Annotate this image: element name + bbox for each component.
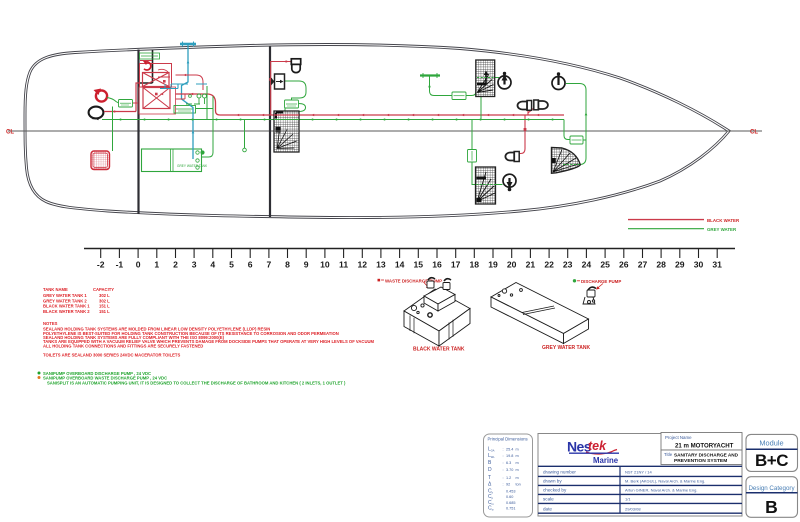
svg-text:m: m (516, 454, 519, 458)
svg-text:GREY WATER TANK 1: GREY WATER TANK 1 (43, 293, 87, 298)
svg-text:21 m MOTORYACHT: 21 m MOTORYACHT (675, 443, 734, 450)
svg-text:0.453: 0.453 (506, 490, 516, 494)
svg-text:D: D (488, 467, 492, 473)
svg-text:151 L: 151 L (99, 309, 110, 314)
svg-text:1: 1 (154, 260, 159, 270)
svg-text:20: 20 (507, 260, 517, 270)
svg-text:BLACK WATER TANK 2: BLACK WATER TANK 2 (43, 309, 90, 314)
svg-text:SANISPLIT IS AN AUTOMATIC PUMP: SANISPLIT IS AN AUTOMATIC PUMPING UNIT, … (47, 380, 346, 385)
svg-text:28: 28 (656, 260, 666, 270)
svg-text:m: m (516, 461, 519, 465)
svg-text:Design Category: Design Category (748, 485, 795, 492)
svg-text:GREY WATER TANK: GREY WATER TANK (177, 164, 208, 168)
svg-text:10: 10 (320, 260, 330, 270)
svg-text:m: m (516, 468, 519, 472)
svg-text:CAPACITY: CAPACITY (93, 287, 114, 292)
svg-text:0: 0 (136, 260, 141, 270)
svg-text:6: 6 (248, 260, 253, 270)
svg-text:NST 21NY / 14: NST 21NY / 14 (625, 469, 653, 474)
svg-text:date: date (543, 506, 552, 511)
svg-text:21: 21 (526, 260, 536, 270)
svg-text:CL: CL (750, 130, 758, 136)
svg-text:16: 16 (432, 260, 442, 270)
svg-text:TANK NAME: TANK NAME (43, 287, 68, 292)
svg-text:27: 27 (638, 260, 648, 270)
svg-text:Artun GINER, Naval Arch. & Mar: Artun GINER, Naval Arch. & Marine Eng. (625, 488, 697, 493)
svg-text:0.751: 0.751 (506, 506, 516, 510)
svg-text:Marine: Marine (593, 456, 619, 465)
svg-text:0.60: 0.60 (506, 495, 513, 499)
svg-text:3: 3 (192, 260, 197, 270)
svg-text:7: 7 (267, 260, 272, 270)
svg-text:-2: -2 (97, 260, 105, 270)
svg-text:25.4: 25.4 (506, 447, 513, 451)
svg-text:DISCHARGE PUMP: DISCHARGE PUMP (581, 279, 621, 284)
svg-text:TOILETS ARE SEALAND 3000 SERIE: TOILETS ARE SEALAND 3000 SERIES 24VDC MA… (43, 353, 180, 358)
svg-text:302 L: 302 L (99, 298, 110, 303)
svg-text:22: 22 (544, 260, 554, 270)
svg-text:12: 12 (358, 260, 368, 270)
svg-text::: : (503, 482, 504, 486)
svg-text:ton: ton (516, 482, 521, 486)
svg-text:ALL HOLDING TANK CONNECTIONS A: ALL HOLDING TANK CONNECTIONS AND FITTING… (43, 343, 203, 348)
svg-text:drawing number: drawing number (543, 469, 576, 474)
svg-text:302 L: 302 L (99, 293, 110, 298)
svg-text:GREY WATER TANK: GREY WATER TANK (542, 345, 590, 351)
svg-text:24: 24 (582, 260, 592, 270)
svg-text:-1: -1 (116, 260, 124, 270)
svg-text:tek: tek (588, 439, 607, 453)
svg-text:19: 19 (488, 260, 498, 270)
svg-text:m: m (516, 476, 519, 480)
svg-text:BLACK WATER TANK 1: BLACK WATER TANK 1 (43, 304, 90, 309)
svg-text:PREVENTION SYSTEM: PREVENTION SYSTEM (674, 458, 727, 464)
svg-text:30: 30 (694, 260, 704, 270)
svg-text:M. Berk (AKGUL), Naval Arch. &: M. Berk (AKGUL), Naval Arch. & Marine En… (625, 479, 705, 484)
svg-text:CL: CL (6, 130, 14, 136)
svg-text:13: 13 (376, 260, 386, 270)
svg-text:19.8: 19.8 (506, 454, 513, 458)
svg-text:6.3: 6.3 (506, 461, 511, 465)
svg-text:151 L: 151 L (99, 304, 110, 309)
svg-text:Title: Title (664, 452, 673, 457)
svg-text::: : (503, 468, 504, 472)
svg-text:SANITARY DISCHARGE AND: SANITARY DISCHARGE AND (674, 453, 739, 458)
svg-text:GREY WATER: GREY WATER (707, 227, 737, 232)
svg-text:NOTES: NOTES (43, 321, 58, 326)
svg-text:17: 17 (451, 260, 461, 270)
svg-text:Principal Dimensions: Principal Dimensions (488, 437, 528, 442)
svg-text:29/03/08: 29/03/08 (625, 506, 641, 511)
svg-text:8: 8 (285, 260, 290, 270)
svg-text:drawn by: drawn by (543, 479, 562, 484)
svg-text:GREY WATER TANK 2: GREY WATER TANK 2 (43, 298, 87, 303)
svg-text:4: 4 (210, 260, 215, 270)
svg-text:9: 9 (304, 260, 309, 270)
svg-text:29: 29 (675, 260, 685, 270)
svg-text:31: 31 (712, 260, 722, 270)
svg-text:3.70: 3.70 (506, 468, 513, 472)
svg-text:18: 18 (470, 260, 480, 270)
svg-text:0.685: 0.685 (506, 501, 516, 505)
svg-text:5: 5 (229, 260, 234, 270)
svg-text::: : (503, 447, 504, 451)
svg-text::: : (503, 461, 504, 465)
svg-text:1.2: 1.2 (506, 476, 511, 480)
svg-text:scale: scale (543, 497, 554, 502)
svg-text:B+C: B+C (755, 451, 788, 470)
svg-text:checked by: checked by (543, 488, 567, 493)
svg-text:92: 92 (506, 482, 510, 486)
svg-text:11: 11 (339, 260, 348, 270)
svg-text:23: 23 (563, 260, 573, 270)
svg-text:Project Name: Project Name (665, 435, 692, 440)
svg-text:25: 25 (600, 260, 610, 270)
svg-text:BLACK WATER: BLACK WATER (707, 218, 740, 223)
svg-text:26: 26 (619, 260, 629, 270)
svg-text:14: 14 (395, 260, 405, 270)
svg-text::: : (503, 476, 504, 480)
svg-text:1/1: 1/1 (625, 497, 631, 502)
svg-text:15: 15 (414, 260, 424, 270)
svg-text::: : (503, 454, 504, 458)
svg-text:2: 2 (173, 260, 178, 270)
svg-text:B: B (765, 497, 778, 517)
svg-text:T: T (488, 475, 491, 481)
svg-text:BLACK WATER TANK: BLACK WATER TANK (413, 347, 465, 353)
svg-text:m: m (516, 447, 519, 451)
svg-text:Module: Module (759, 438, 783, 447)
